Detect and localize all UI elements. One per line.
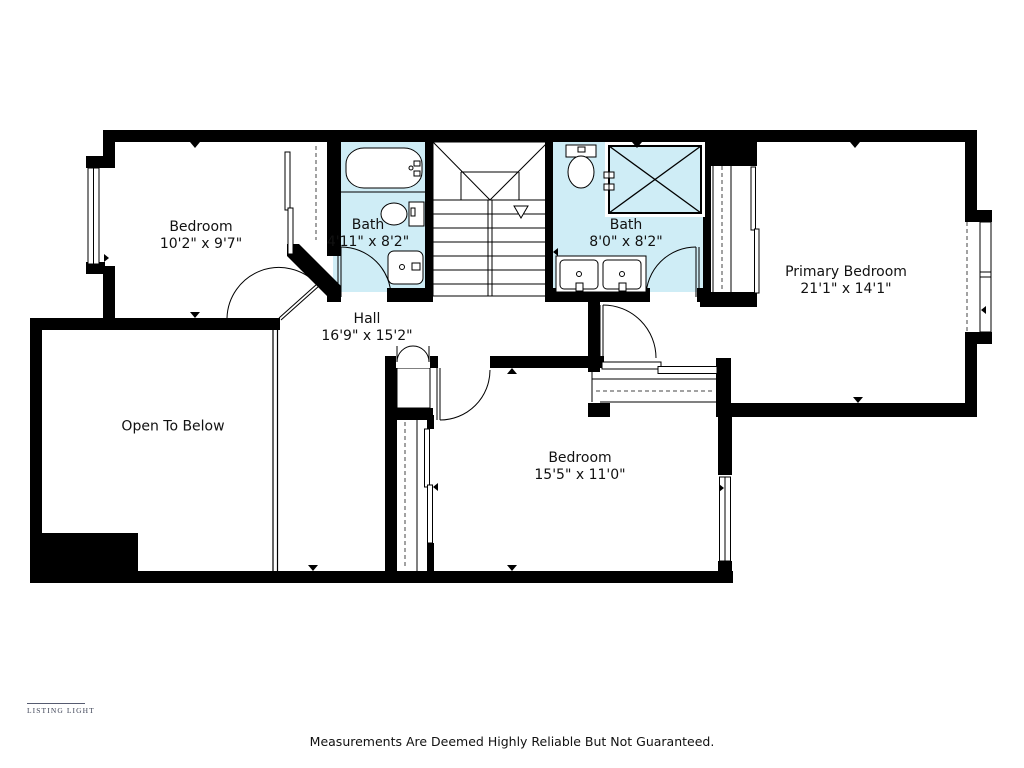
bathtub-icon (341, 148, 425, 192)
floor-plan-drawing (0, 0, 1024, 768)
room-label-open-to-below: Open To Below (121, 419, 224, 436)
measurements-disclaimer: Measurements Are Deemed Highly Reliable … (0, 734, 1024, 749)
listing-light-logo: LISTING LIGHT (27, 703, 95, 715)
room-name: Bedroom (534, 450, 625, 467)
room-label-hall: Hall 16'9" x 15'2" (321, 311, 412, 345)
room-name: Primary Bedroom (785, 264, 907, 281)
room-name: Hall (321, 311, 412, 328)
room-label-bedroom2: Bedroom 15'5" x 11'0" (534, 450, 625, 484)
room-label-bedroom1: Bedroom 10'2" x 9'7" (160, 219, 242, 253)
room-name: Bedroom (160, 219, 242, 236)
staircase (433, 142, 548, 296)
room-dims: 4'11" x 8'2" (327, 234, 409, 251)
door-bedroom2-icon (437, 368, 490, 420)
railing (273, 330, 278, 571)
room-dims: 16'9" x 15'2" (321, 328, 412, 345)
walls (30, 130, 992, 583)
room-label-bath1: Bath 4'11" x 8'2" (327, 217, 409, 251)
room-dims: 10'2" x 9'7" (160, 236, 242, 253)
room-label-primary: Primary Bedroom 21'1" x 14'1" (785, 264, 907, 298)
room-name: Bath (589, 217, 662, 234)
double-vanity-icon (556, 256, 646, 292)
stairs-down-arrow-icon (514, 206, 528, 218)
room-name: Bath (327, 217, 409, 234)
closet-vestibule (592, 362, 717, 402)
toilet-bath2-icon (566, 145, 596, 188)
door-primary-icon (600, 305, 656, 358)
shower-icon (604, 142, 705, 217)
sink-bath1-icon (388, 251, 423, 284)
room-label-bath2: Bath 8'0" x 8'2" (589, 217, 662, 251)
door-bedroom1-icon (227, 267, 319, 320)
closet-bedroom1 (285, 146, 316, 254)
linen-closet-box (397, 368, 430, 408)
room-name: Open To Below (121, 419, 224, 436)
closet-primary (713, 166, 759, 293)
window-primary-bay-icon (967, 222, 991, 332)
closet-bedroom2 (397, 368, 433, 571)
room-dims: 8'0" x 8'2" (589, 234, 662, 251)
logo-text: LISTING LIGHT (27, 706, 95, 715)
floor-plan-page: Bedroom 10'2" x 9'7" Bath 4'11" x 8'2" H… (0, 0, 1024, 768)
window-bedroom1-icon (88, 168, 99, 264)
room-dims: 21'1" x 14'1" (785, 281, 907, 298)
bifold-door-icon (396, 346, 430, 368)
logo-rule (27, 703, 85, 704)
room-dims: 15'5" x 11'0" (534, 467, 625, 484)
